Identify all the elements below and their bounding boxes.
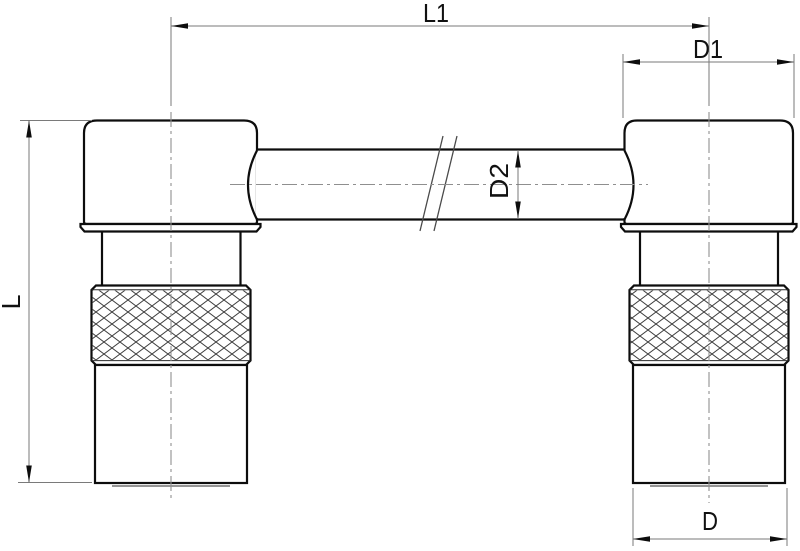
dim-label-d1: D1 <box>693 34 723 64</box>
dim-label-l1: L1 <box>423 0 449 28</box>
dim-label-l: L <box>0 295 26 310</box>
connector-assembly-drawing: L1 D1 D2 L D <box>0 0 800 551</box>
dim-label-d: D <box>702 506 718 536</box>
technical-drawing-canvas: L1 D1 D2 L D <box>0 0 800 551</box>
dim-label-d2: D2 <box>484 163 514 199</box>
